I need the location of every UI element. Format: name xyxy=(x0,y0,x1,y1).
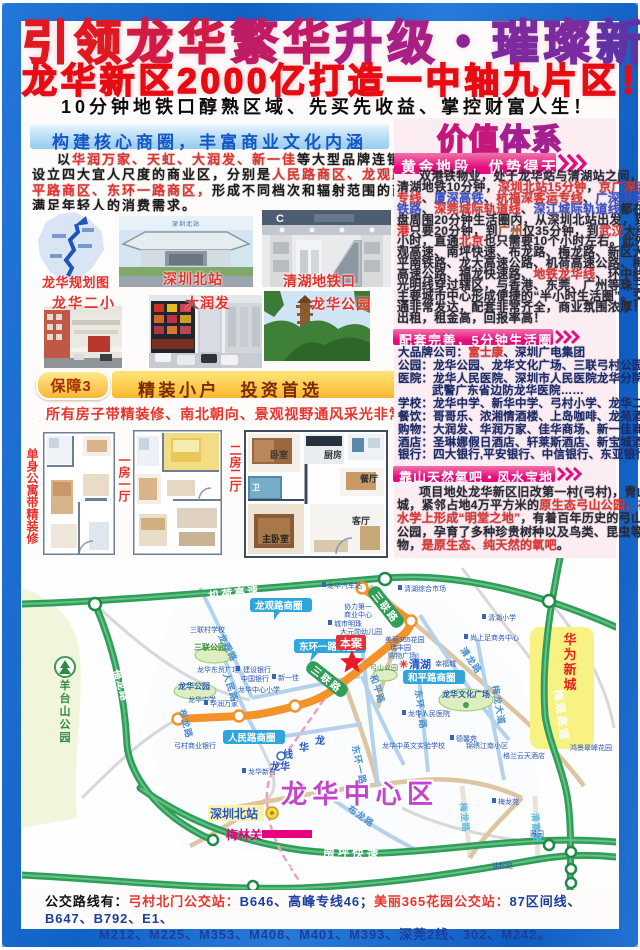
svg-text:主卧室: 主卧室 xyxy=(262,533,289,544)
svg-text:瑞丰园: 瑞丰园 xyxy=(390,643,411,652)
svg-text:卧室: 卧室 xyxy=(270,449,288,460)
svg-text:人民路商圈: 人民路商圈 xyxy=(228,732,276,744)
svg-text:龙华公园: 龙华公园 xyxy=(177,681,210,691)
svg-text:C: C xyxy=(276,213,284,225)
svg-text:龙华中心小学: 龙华中心小学 xyxy=(238,685,280,694)
svg-text:为: 为 xyxy=(563,647,576,662)
svg-text:龙华东贸广场: 龙华东贸广场 xyxy=(197,665,239,674)
svg-text:台: 台 xyxy=(60,691,71,705)
svg-text:龙观路商圈: 龙观路商圈 xyxy=(254,600,303,612)
svg-text:餐厅: 餐厅 xyxy=(359,473,378,484)
svg-text:油松路: 油松路 xyxy=(492,861,513,870)
svg-text:清富路: 清富路 xyxy=(530,812,543,843)
svg-text:龙华人民医院: 龙华人民医院 xyxy=(408,709,450,718)
svg-text:深圳北站: 深圳北站 xyxy=(210,806,258,821)
svg-text:清湖综合市场: 清湖综合市场 xyxy=(404,584,446,593)
svg-text:梅龙苑: 梅龙苑 xyxy=(498,797,519,806)
svg-text:三联村学校: 三联村学校 xyxy=(190,625,225,634)
svg-text:弓山公园: 弓山公园 xyxy=(370,663,398,672)
svg-text:华: 华 xyxy=(299,741,309,754)
svg-text:协力第一: 协力第一 xyxy=(344,602,372,611)
svg-text:城: 城 xyxy=(563,677,576,692)
svg-text:中国银行: 中国银行 xyxy=(241,674,269,683)
svg-text:厨房: 厨房 xyxy=(324,449,342,460)
svg-text:龙: 龙 xyxy=(314,734,325,747)
svg-text:龙华汽车站: 龙华汽车站 xyxy=(327,581,362,590)
svg-text:购物广场: 购物广场 xyxy=(388,651,416,660)
svg-text:本案: 本案 xyxy=(340,636,363,650)
svg-text:客厅: 客厅 xyxy=(351,515,370,526)
svg-text:龙华文化广场: 龙华文化广场 xyxy=(441,689,490,699)
svg-text:华: 华 xyxy=(563,632,576,647)
svg-text:新: 新 xyxy=(563,662,576,677)
svg-text:幸福城: 幸福城 xyxy=(435,659,456,668)
svg-text:园: 园 xyxy=(60,731,71,744)
svg-text:雅园: 雅园 xyxy=(530,829,544,838)
svg-text:格兰云天酒店: 格兰云天酒店 xyxy=(503,751,545,760)
svg-text:鸿景翠峰花园: 鸿景翠峰花园 xyxy=(570,743,612,752)
svg-text:梅林关: 梅林关 xyxy=(226,827,262,842)
svg-text:建设银行: 建设银行 xyxy=(243,665,271,674)
svg-text:清湖小学: 清湖小学 xyxy=(488,613,516,622)
svg-text:龙华中英文实验学校: 龙华中英文实验学校 xyxy=(382,741,445,750)
svg-text:大元勋幼儿园: 大元勋幼儿园 xyxy=(340,627,382,636)
svg-text:尚上足商务中心: 尚上足商务中心 xyxy=(470,633,519,642)
svg-text:新一佳: 新一佳 xyxy=(278,673,299,682)
svg-text:羊: 羊 xyxy=(60,678,71,692)
svg-text:弓村商业银行: 弓村商业银行 xyxy=(174,741,216,750)
svg-text:城市明珠: 城市明珠 xyxy=(334,619,362,628)
svg-text:深圳北站: 深圳北站 xyxy=(172,220,200,228)
svg-text:德馨苑: 德馨苑 xyxy=(456,734,477,743)
svg-text:公: 公 xyxy=(60,718,71,731)
svg-text:山: 山 xyxy=(60,704,71,718)
svg-text:✳: ✳ xyxy=(399,659,408,671)
svg-text:龙华中学: 龙华中学 xyxy=(188,695,216,704)
svg-text:和平路商圈: 和平路商圈 xyxy=(407,672,456,684)
svg-text:锦绣江南小区: 锦绣江南小区 xyxy=(466,741,508,750)
svg-text:龙华新村: 龙华新村 xyxy=(248,767,276,776)
svg-text:美丽365花园: 美丽365花园 xyxy=(385,635,425,644)
svg-text:商业中心: 商业中心 xyxy=(344,610,372,619)
svg-text:卫: 卫 xyxy=(252,483,260,492)
